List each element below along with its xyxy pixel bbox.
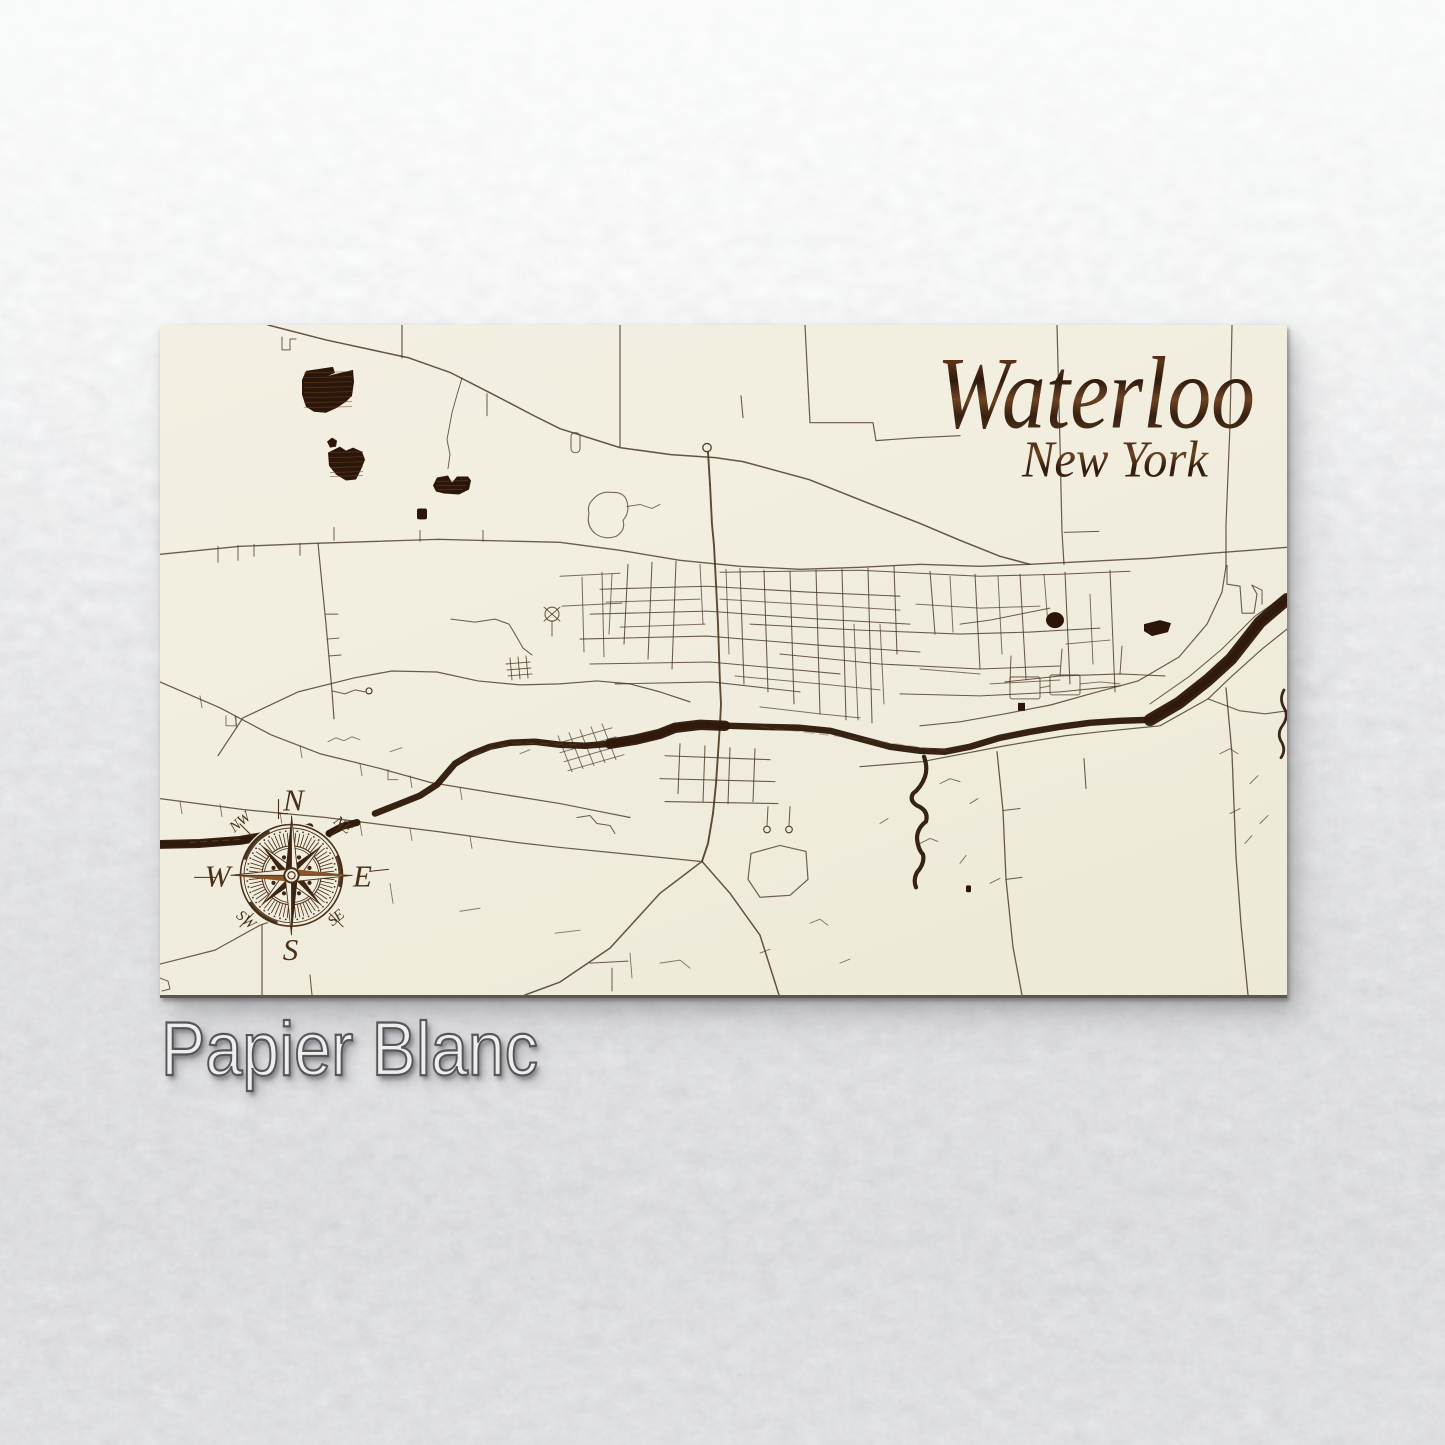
- svg-text:W: W: [205, 858, 234, 893]
- svg-text:New York: New York: [1021, 432, 1209, 489]
- svg-text:E: E: [352, 858, 372, 893]
- svg-text:N: N: [282, 783, 306, 818]
- svg-text:NW: NW: [226, 808, 255, 836]
- svg-text:S: S: [283, 932, 298, 967]
